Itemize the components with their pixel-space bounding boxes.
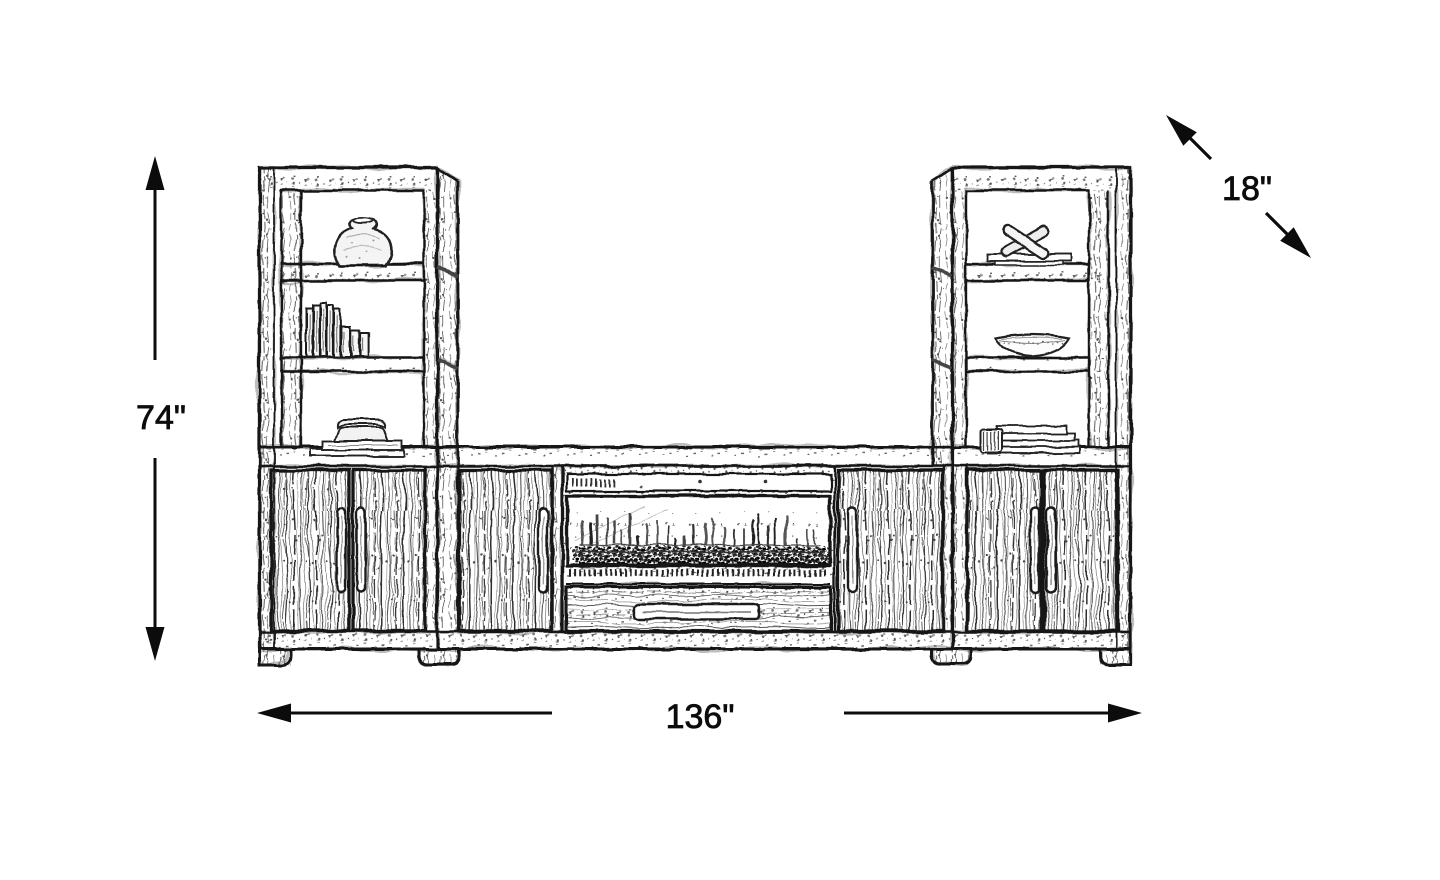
svg-text:136": 136": [666, 698, 735, 736]
svg-text:18": 18": [1222, 170, 1272, 208]
svg-text:74": 74": [136, 399, 186, 437]
